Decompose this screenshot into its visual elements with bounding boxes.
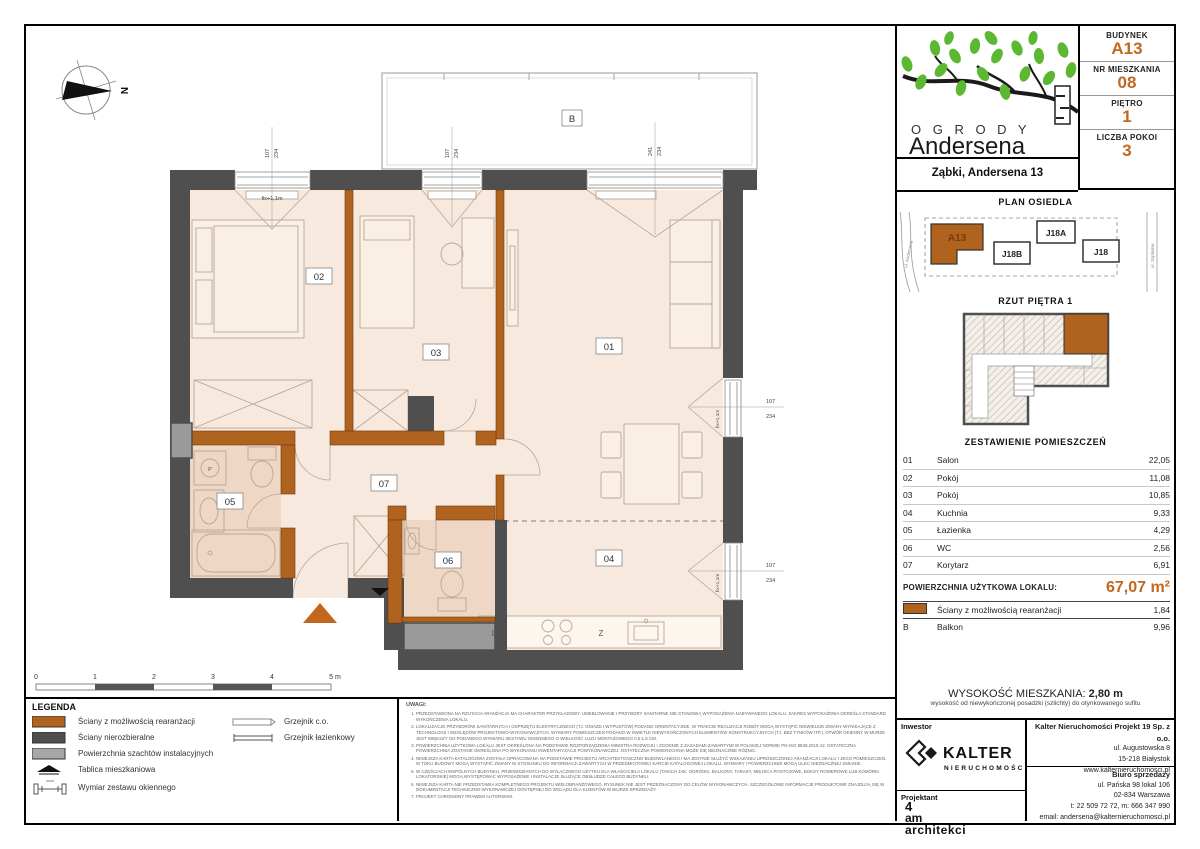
bottom-strip-divider [24,697,895,699]
svg-text:5 m: 5 m [329,674,341,681]
notes: UWAGI: PRZEDSTAWIONA NA RZUTACH ARANŻACJ… [406,702,890,820]
svg-text:1: 1 [93,674,97,681]
fix-label: fix+1,1m [715,410,721,428]
estate-block-j18a: J18A [1037,221,1075,243]
room-tag-05: 05 [217,493,243,509]
notes-list: PRZEDSTAWIONA NA RZUTACH ARANŻACJA MA CH… [416,711,890,800]
entrance-marker [303,603,337,623]
compass-north-label: N [118,87,129,94]
estate-block-j18: J18 [1083,240,1119,262]
room-tag-02: 02 [306,268,332,284]
total-area-row: POWIERZCHNIA UŻYTKOWA LOKALU: 67,07 m² [903,575,1170,602]
note-item: NINIEJSZA KARTA KATALOGOWA ZOSTAŁA OPRAC… [416,756,890,767]
table-row: 06WC2,56 [903,540,1170,558]
svg-text:3: 3 [211,674,215,681]
street-right-label: ul. Szpitalna [1150,243,1155,268]
rooms-table: 01Salon22,05 02Pokój11,08 03Pokój10,85 0… [903,452,1170,636]
room-tag-07: 07 [371,475,397,491]
svg-text:02: 02 [314,272,325,283]
apartment-info-table: BUDYNEK A13 NR MIESZKANIA 08 PIĘTRO 1 LI… [1078,26,1174,190]
legend-mailbox-arrow-icon [36,764,62,776]
svg-text:241: 241 [648,147,654,156]
table-row: 03Pokój10,85 [903,487,1170,505]
note-item: PROJEKT CHRONIONY PRAWEM AUTORSKIM. [416,794,890,800]
svg-text:04: 04 [604,554,615,565]
rooms-table-title: ZESTAWIENIE POMIESZCZEŃ [895,437,1176,447]
room-tag-06: 06 [435,552,461,568]
svg-text:01: 01 [604,342,615,353]
legend-window-dim-icon [32,779,68,797]
svg-text:NIERUCHOMOŚCI: NIERUCHOMOŚCI [944,763,1023,772]
svg-text:107: 107 [445,149,451,158]
note-item: POWIERZCHNIA UŻYTKOWA LOKALU JEST OKREŚL… [416,743,890,754]
legend-swatch-gray-icon [32,748,66,760]
orange-swatch-icon [903,603,927,614]
grid-line [895,790,1025,791]
svg-text:234: 234 [657,147,663,156]
note-item: W CZĘŚCIACH WSPÓLNYCH BUDYNKU, PRZEWIDZI… [416,769,890,780]
scale-bar: 0 1 2 3 4 5 m [34,674,341,690]
svg-text:L: L [492,629,497,638]
svg-text:B: B [569,114,575,125]
legend-notes-divider [397,697,399,821]
svg-text:234: 234 [766,414,775,420]
bed-double-icon [192,220,304,338]
legend-swatch-orange-icon [32,716,66,728]
svg-text:A13: A13 [948,233,967,244]
svg-text:J18: J18 [1094,247,1108,257]
svg-text:107: 107 [766,563,775,569]
bed-single-icon [360,216,414,328]
tree-branch-icon [900,29,1078,124]
svg-text:4: 4 [270,674,274,681]
note-item: PRZEDSTAWIONA NA RZUTACH ARANŻACJA MA CH… [416,711,890,722]
svg-text:107: 107 [766,399,775,405]
legend-radiator-co-icon [232,717,276,727]
sales-office: Biuro sprzedaży ul. Pańska 98 lokal 106 … [1030,769,1170,824]
total-area-value: 67,07 m² [1106,579,1170,597]
room-tag-B: B [562,110,582,126]
legend: LEGENDA Ściany z możliwością rearanżacji… [32,702,392,820]
height-note: wysokość od niewykończonej posadzki (szl… [895,700,1176,707]
desk-icon [462,218,494,288]
table-row: 07Korytarz6,91 [903,557,1170,575]
stairs-icon [1014,366,1034,396]
svg-text:0: 0 [34,674,38,681]
shaft [171,423,192,458]
svg-text:107: 107 [265,149,271,158]
legend-radiator-bath-icon [232,733,276,743]
svg-text:KALTER: KALTER [943,745,1013,762]
phone-numbers[interactable]: t: 22 509 72 72, m: 666 347 990 [1030,802,1170,813]
svg-text:07: 07 [379,479,390,490]
brand-line2: Andersena [909,133,1026,157]
catalog-sheet: N [0,0,1200,849]
room-tag-04: 04 [596,550,622,566]
floor-overview-title: RZUT PIĘTRA 1 [895,296,1176,306]
svg-text:234: 234 [766,578,775,584]
fix-label: fix+1,1m [715,574,721,592]
floor-overview-map [958,308,1112,430]
fix-label: fix+1,1m [262,196,283,202]
svg-text:06: 06 [443,556,454,567]
table-row: 02Pokój11,08 [903,470,1170,488]
height-value: 2,80 m [1089,688,1123,700]
info-budynek: BUDYNEK A13 [1080,28,1174,62]
location-bar: Ząbki, Andersena 13 [897,157,1078,192]
height-info: WYSOKOŚĆ MIESZKANIA: 2,80 m wysokość od … [895,688,1176,707]
highlighted-unit [1064,314,1108,354]
grid-line [895,718,1176,720]
svg-text:05: 05 [225,497,236,508]
info-pietro: PIĘTRO 1 [1080,96,1174,130]
table-row: 04Kuchnia9,33 [903,505,1170,523]
table-row: 01Salon22,05 [903,452,1170,470]
legend-swatch-dark-icon [32,732,66,744]
room-tag-03: 03 [423,344,449,360]
table-row: 05Łazienka4,29 [903,522,1170,540]
info-pokoje: LICZBA POKOI 3 [1080,130,1174,163]
note-item: NINIEJSZA KARTA NIE PRZEDSTAWIA KOMPLETN… [416,782,890,793]
svg-text:J18B: J18B [1002,249,1022,259]
svg-text:P: P [208,467,212,473]
grid-line [1025,718,1027,821]
compass-icon: N [56,60,129,120]
estate-plan-title: PLAN OSIEDLA [895,197,1176,207]
studio-logo: 4 am architekci [905,801,966,836]
floor-plan: N [24,24,895,697]
estate-block-a13: A13 [931,224,983,264]
kalter-logo: KALTER NIERUCHOMOŚCI [903,735,1023,787]
bathroom-floor [190,445,281,578]
email-link[interactable]: email: andersena@kalternieruchomosci.pl [1030,813,1170,824]
inwestor-label: Inwestor [901,722,932,731]
svg-text:03: 03 [431,348,442,359]
location-text: Ząbki, Andersena 13 [932,167,1043,179]
svg-text:J18A: J18A [1046,228,1066,238]
room-tag-01: 01 [596,338,622,354]
sofa-icon [670,220,720,348]
estate-block-j18b: J18B [994,242,1030,264]
estate-plan-map: ul. Andersena ul. Szpitalna A13 J18B J18… [897,210,1176,295]
balcony-area-row: B Balkon 9,96 [903,619,1170,636]
svg-text:Z: Z [599,629,604,638]
wc-floor [402,520,495,617]
svg-text:234: 234 [454,149,460,158]
info-mieszkanie: NR MIESZKANIA 08 [1080,62,1174,96]
brand-logo: O G R O D Y Andersena [897,26,1078,159]
radiator-icon [596,191,656,199]
shaft [404,623,495,650]
svg-text:2: 2 [152,674,156,681]
svg-text:234: 234 [274,149,280,158]
tv-unit-icon [507,230,518,326]
note-item: LOKALIZACJE PRZYBORÓW SANITARNYCH I OSPR… [416,724,890,741]
walls-area-row: Ściany z możliwością rearanżacji 1,84 [903,602,1170,620]
kalter-mark-icon [907,741,937,765]
